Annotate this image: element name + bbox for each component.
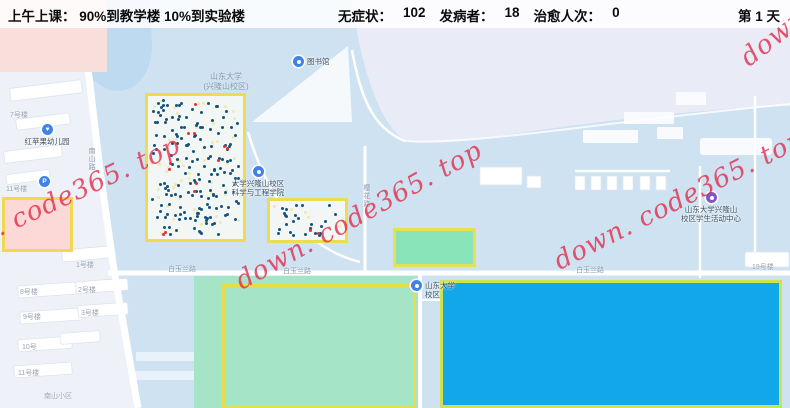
agent-dot-navy — [233, 183, 236, 186]
agent-dot-navy — [226, 160, 229, 163]
agent-dot-yellow — [232, 110, 235, 113]
agent-dot-navy — [209, 155, 212, 158]
agent-dot-yellow — [150, 162, 153, 165]
agent-dot-navy — [189, 182, 192, 185]
agent-dot-navy — [205, 222, 208, 225]
agent-dot-yellow — [188, 172, 191, 175]
agent-dot-red — [187, 132, 190, 135]
agent-dot-navy — [210, 173, 213, 176]
agent-dot-navy — [224, 191, 227, 194]
stat-label: 治愈人次： — [534, 5, 602, 25]
agent-dot-navy — [208, 206, 211, 209]
agent-dot-navy — [166, 185, 169, 188]
zone-sports-field — [393, 228, 476, 267]
agent-dot-navy — [281, 207, 284, 210]
agent-dot-navy — [215, 195, 218, 198]
agent-dot-navy — [320, 225, 323, 228]
agent-dot-navy — [152, 152, 155, 155]
agent-dot-navy — [230, 126, 233, 129]
agent-dot-navy — [168, 226, 171, 229]
agent-dot-navy — [170, 194, 173, 197]
agent-dot-navy — [166, 213, 169, 216]
agent-dot-navy — [168, 203, 171, 206]
agent-dot-navy — [278, 228, 281, 231]
agent-dot-navy — [289, 231, 292, 234]
zone-teaching-building — [145, 93, 246, 242]
agent-dot-navy — [170, 154, 173, 157]
agent-dot-yellow — [200, 223, 203, 226]
agent-dot-navy — [163, 148, 166, 151]
agent-dot-yellow — [338, 225, 341, 228]
agent-dot-navy — [171, 116, 174, 119]
agent-dot-navy — [199, 138, 202, 141]
agent-dot-navy — [234, 218, 237, 221]
agent-dot-navy — [219, 167, 222, 170]
agent-dot-navy — [169, 233, 172, 236]
agent-dot-navy — [203, 146, 206, 149]
agent-dot-navy — [222, 116, 225, 119]
agent-dot-navy — [211, 223, 214, 226]
stat-label: 无症状： — [338, 5, 392, 25]
agent-dot-navy — [200, 208, 203, 211]
agent-dot-navy — [310, 223, 313, 226]
agent-dot-navy — [183, 211, 186, 214]
agent-dot-navy — [157, 102, 160, 105]
agent-dot-navy — [185, 116, 188, 119]
agent-dot-navy — [176, 158, 179, 161]
agent-dot-navy — [292, 220, 295, 223]
agent-dot-navy — [209, 128, 212, 131]
simulation-window: 山东大学 (兴隆山校区) 南山路樱花路白玉兰路白玉兰路白玉兰路7号楼11号楼1号… — [0, 0, 790, 408]
agent-dot-navy — [159, 183, 162, 186]
agent-dot-navy — [334, 213, 337, 216]
agent-dot-navy — [195, 124, 198, 127]
agent-dot-yellow — [290, 208, 293, 211]
agent-dot-navy — [178, 104, 181, 107]
zone-lab-building — [267, 198, 348, 243]
agent-dot-navy — [178, 218, 181, 221]
agent-dot-navy — [328, 204, 331, 207]
agent-dot-navy — [229, 159, 232, 162]
agent-dot-yellow — [212, 122, 215, 125]
day-counter: 第 1 天 — [738, 5, 780, 25]
agent-dot-navy — [156, 216, 159, 219]
agent-dot-navy — [297, 217, 300, 220]
agent-dot-navy — [225, 110, 228, 113]
agent-dot-navy — [295, 204, 298, 207]
agent-dot-navy — [285, 208, 288, 211]
agent-dot-navy — [200, 111, 203, 114]
zone-hospital — [440, 280, 782, 408]
stat-label: 发病者： — [440, 5, 494, 25]
agent-dot-navy — [165, 193, 168, 196]
agent-dot-navy — [191, 160, 194, 163]
agent-dot-navy — [155, 148, 158, 151]
agent-dot-navy — [215, 207, 218, 210]
agent-dot-navy — [180, 137, 183, 140]
agent-dot-navy — [292, 234, 295, 237]
agent-dot-navy — [277, 232, 280, 235]
agent-dot-navy — [216, 173, 219, 176]
agent-dot-navy — [197, 212, 200, 215]
agent-dot-navy — [193, 227, 196, 230]
agent-dot-navy — [165, 118, 168, 121]
agent-dot-yellow — [180, 179, 183, 182]
agent-dot-navy — [187, 191, 190, 194]
agent-dot-yellow — [202, 102, 205, 105]
agent-dot-navy — [207, 197, 210, 200]
agent-dot-navy — [154, 121, 157, 124]
agent-dot-navy — [177, 184, 180, 187]
agent-dot-red — [169, 162, 172, 165]
lab-agent-dots — [270, 201, 345, 240]
agent-dot-navy — [206, 203, 209, 206]
agent-dot-navy — [220, 205, 223, 208]
agent-dot-navy — [216, 105, 219, 108]
agent-dot-yellow — [216, 140, 219, 143]
agent-dot-navy — [203, 165, 206, 168]
agent-dot-navy — [167, 189, 170, 192]
agent-dot-navy — [191, 194, 194, 197]
agent-dot-navy — [171, 129, 174, 132]
agent-dot-navy — [162, 99, 165, 102]
agent-dot-navy — [224, 214, 227, 217]
agent-dot-navy — [162, 109, 165, 112]
agent-dot-navy — [163, 226, 166, 229]
stat-cured: 治愈人次： 0 — [534, 5, 634, 25]
agent-dot-navy — [210, 145, 213, 148]
agent-dot-navy — [221, 126, 224, 129]
agent-dot-navy — [223, 171, 226, 174]
agent-dot-navy — [153, 144, 156, 147]
agent-dot-navy — [174, 214, 177, 217]
agent-dot-navy — [160, 204, 163, 207]
agent-dot-navy — [183, 126, 186, 129]
agent-dot-yellow — [211, 141, 214, 144]
agent-dot-navy — [193, 179, 196, 182]
agent-dot-navy — [199, 126, 202, 129]
agent-dot-navy — [324, 220, 327, 223]
agent-dot-navy — [217, 233, 220, 236]
agent-dot-navy — [166, 104, 169, 107]
agent-dot-navy — [176, 142, 179, 145]
agent-dot-navy — [285, 223, 288, 226]
stat-value: 18 — [505, 5, 520, 25]
agent-dot-navy — [179, 206, 182, 209]
agent-dot-yellow — [172, 186, 175, 189]
agent-dot-navy — [196, 215, 199, 218]
agent-dot-navy — [193, 135, 196, 138]
agent-dot-navy — [221, 158, 224, 161]
agent-dot-red — [309, 229, 312, 232]
zone-quarantine — [2, 197, 73, 252]
agent-dot-navy — [179, 213, 182, 216]
agent-dot-navy — [175, 229, 178, 232]
epidemic-stats: 无症状： 102 发病者： 18 治愈人次： 0 — [338, 5, 634, 25]
agent-dot-navy — [237, 202, 240, 205]
agent-dot-navy — [177, 165, 180, 168]
agent-dot-navy — [155, 134, 158, 137]
agent-dot-navy — [159, 114, 162, 117]
agent-dot-navy — [184, 217, 187, 220]
agent-dot-yellow — [237, 219, 240, 222]
agent-dot-navy — [184, 172, 187, 175]
agent-dot-navy — [209, 216, 212, 219]
agent-dot-yellow — [233, 157, 236, 160]
agent-dot-yellow — [157, 196, 160, 199]
agent-dot-navy — [207, 102, 210, 105]
agent-dot-navy — [301, 204, 304, 207]
agent-dot-navy — [188, 166, 191, 169]
agent-dot-navy — [197, 173, 200, 176]
agent-dot-navy — [237, 165, 240, 168]
agent-dot-yellow — [175, 138, 178, 141]
agent-dot-yellow — [307, 216, 310, 219]
agent-dot-navy — [194, 219, 197, 222]
agent-dot-navy — [217, 132, 220, 135]
agent-dot-navy — [237, 177, 240, 180]
agent-dot-yellow — [215, 215, 218, 218]
agent-dot-navy — [191, 108, 194, 111]
agent-dot-yellow — [219, 221, 222, 224]
agent-dot-red — [164, 231, 167, 234]
agent-dot-yellow — [224, 105, 227, 108]
zone-dorm-border — [222, 284, 416, 408]
agent-dot-navy — [164, 216, 167, 219]
agent-dot-yellow — [273, 205, 276, 208]
agent-dot-navy — [304, 233, 307, 236]
agent-dot-navy — [192, 150, 195, 153]
stat-value: 0 — [612, 5, 620, 25]
agent-dot-navy — [152, 110, 155, 113]
agent-dot-navy — [151, 198, 154, 201]
agent-dot-yellow — [153, 105, 156, 108]
teaching-agent-dots — [148, 96, 243, 239]
agent-dot-yellow — [304, 211, 307, 214]
agent-dot-navy — [222, 184, 225, 187]
agent-dot-navy — [163, 135, 166, 138]
agent-dot-red — [217, 159, 220, 162]
stat-asymptomatic: 无症状： 102 — [338, 5, 440, 25]
agent-dot-navy — [171, 142, 174, 145]
agent-dot-navy — [177, 118, 180, 121]
agent-dot-yellow — [203, 159, 206, 162]
agent-dot-navy — [189, 217, 192, 220]
schedule-status-text: 上午上课： 90%到教学楼 10%到实验楼 — [8, 5, 245, 25]
agent-dot-navy — [196, 158, 199, 161]
agent-dot-navy — [232, 191, 235, 194]
agent-dot-yellow — [158, 163, 161, 166]
stat-infected: 发病者： 18 — [440, 5, 534, 25]
agent-dot-yellow — [172, 218, 175, 221]
agent-dot-navy — [198, 230, 201, 233]
status-bar: 上午上课： 90%到教学楼 10%到实验楼 无症状： 102 发病者： 18 治… — [0, 0, 790, 28]
agent-dot-navy — [185, 157, 188, 160]
agent-dot-navy — [159, 210, 162, 213]
agent-dot-navy — [236, 122, 239, 125]
agent-dot-red — [168, 168, 171, 171]
agent-dot-navy — [229, 172, 232, 175]
agent-dot-navy — [227, 206, 230, 209]
agent-dot-navy — [174, 193, 177, 196]
agent-dot-navy — [164, 121, 167, 124]
stat-value: 102 — [403, 5, 426, 25]
agent-dot-red — [193, 190, 196, 193]
agent-dot-navy — [231, 169, 234, 172]
agent-dot-yellow — [233, 117, 236, 120]
agent-dot-navy — [175, 104, 178, 107]
agent-dot-red — [195, 182, 198, 185]
agent-dot-yellow — [157, 188, 160, 191]
agent-dot-navy — [234, 134, 237, 137]
agent-dot-yellow — [197, 102, 200, 105]
agent-dot-yellow — [188, 177, 191, 180]
agent-dot-yellow — [182, 164, 185, 167]
agent-dot-navy — [211, 119, 214, 122]
agent-dot-navy — [200, 195, 203, 198]
agent-dot-navy — [186, 144, 189, 147]
agent-dot-navy — [199, 190, 202, 193]
agent-dot-red — [194, 103, 197, 106]
agent-dot-navy — [179, 195, 182, 198]
